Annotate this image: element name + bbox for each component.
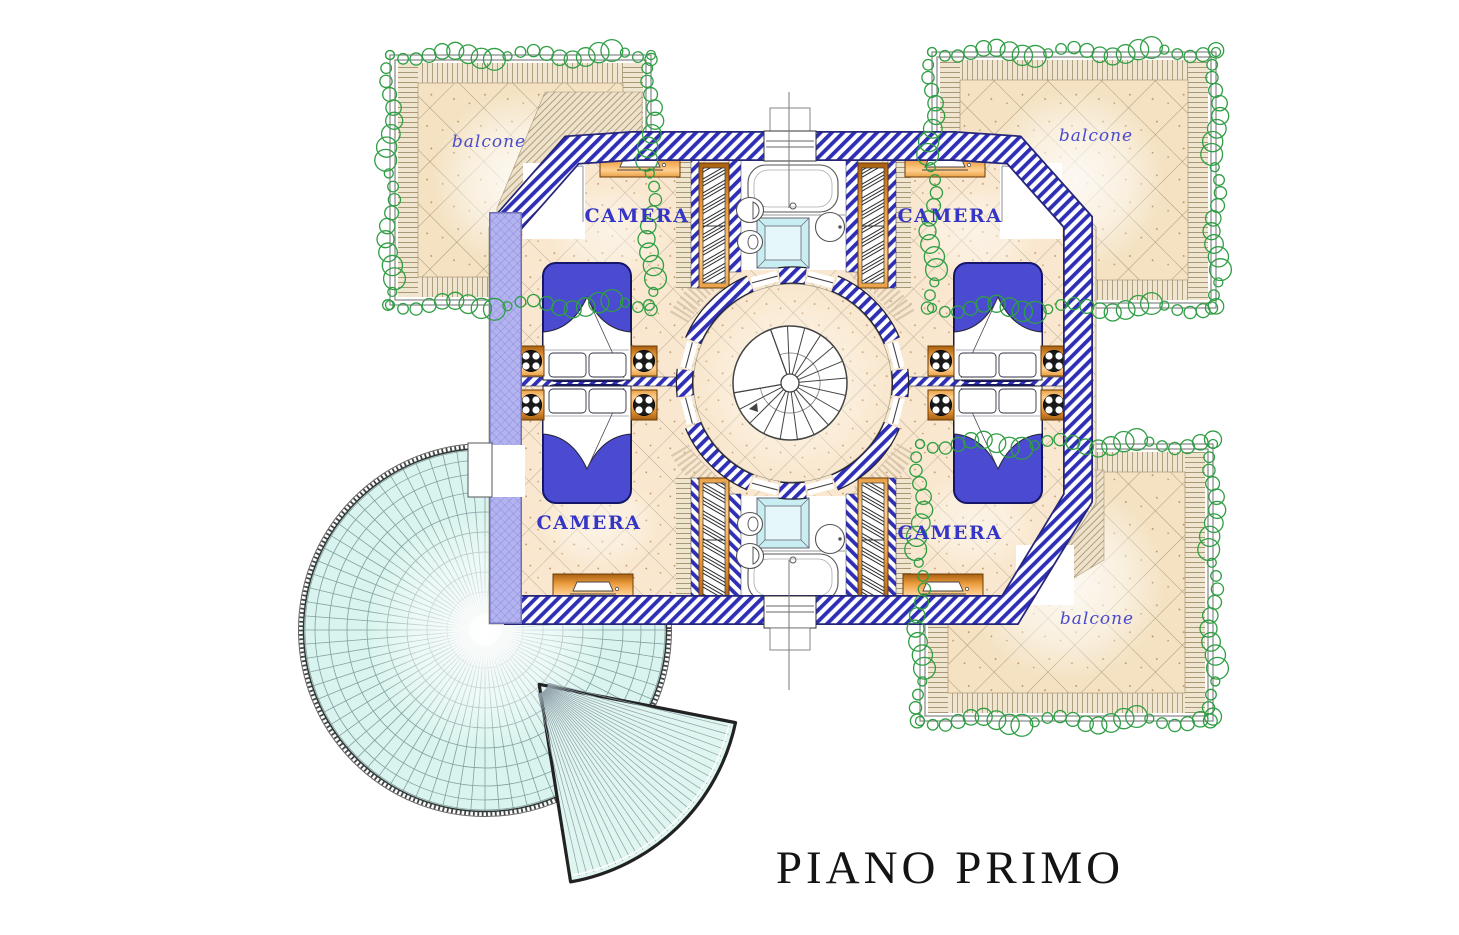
wardrobe [699, 163, 729, 288]
room-label-camera-bottom-right: CAMERA [898, 522, 1003, 544]
room-label-camera-bottom-left: CAMERA [537, 512, 642, 534]
toilet [737, 198, 764, 223]
main-building [468, 92, 1096, 690]
balcony-label-top-left: balcone [452, 132, 526, 152]
bidet [738, 231, 763, 254]
room-label-camera-top-right: CAMERA [898, 205, 1003, 227]
balcony-label-bottom-right: balcone [1060, 609, 1134, 629]
shower [757, 218, 809, 268]
pillow [549, 353, 586, 377]
sink [816, 213, 845, 242]
wardrobe [858, 163, 888, 288]
pillow [589, 353, 626, 377]
door-leaf [468, 443, 492, 497]
plan-title: PIANO PRIMO [776, 842, 1124, 894]
room-label-camera-top-left: CAMERA [585, 205, 690, 227]
nightstand-lamp [631, 346, 657, 376]
spiral-staircase [733, 326, 847, 440]
glass-fan-canopy [538, 683, 735, 882]
floor-plan-drawing: CAMERA CAMERA CAMERA CAMERA balcone balc… [0, 0, 1459, 935]
floor-plan-page: CAMERA CAMERA CAMERA CAMERA balcone balc… [0, 0, 1459, 935]
balcony-label-top-right: balcone [1059, 126, 1133, 146]
